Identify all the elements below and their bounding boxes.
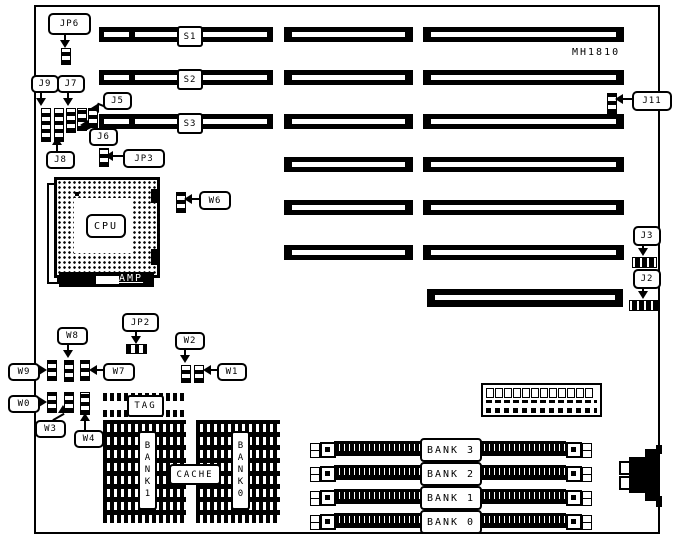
- simm-latch-icon: [566, 490, 582, 506]
- callout-w0: W0: [8, 395, 40, 413]
- pin1-dot: [75, 192, 79, 196]
- jumper-w2: [181, 365, 191, 383]
- simm-latch-icon: [320, 442, 336, 458]
- callout-w8: W8: [57, 327, 88, 345]
- jumper-w0: [47, 392, 57, 413]
- jumper-w9: [47, 360, 57, 381]
- isa-slot: [423, 157, 624, 172]
- callout-w9: W9: [8, 363, 40, 381]
- power-connector: [481, 383, 602, 417]
- keyboard-connector-pin: [619, 476, 631, 490]
- keyboard-connector: [645, 449, 659, 501]
- callout-jp2: JP2: [122, 313, 159, 332]
- connector-j2: [629, 300, 659, 311]
- bank3-label: BANK 3: [420, 438, 482, 462]
- slot-s1-label: S1: [177, 26, 203, 47]
- callout-w4: W4: [74, 430, 104, 448]
- cache-label: CACHE: [169, 464, 221, 485]
- connector-j3: [632, 257, 657, 268]
- jumper-jp6: [61, 48, 71, 65]
- isa-slot: [423, 200, 624, 215]
- socket-tab: [151, 249, 157, 265]
- slot-s3-label: S3: [177, 113, 203, 134]
- board-model-text: MH1810: [572, 47, 620, 58]
- callout-w7: W7: [103, 363, 135, 381]
- slot-s2-label: S2: [177, 69, 203, 90]
- simm-latch-icon: [320, 490, 336, 506]
- isa-slot: [284, 27, 413, 42]
- socket-tab: [151, 189, 157, 203]
- jumper-j9: [41, 108, 51, 142]
- simm-latch-icon: [566, 442, 582, 458]
- callout-j3: J3: [633, 226, 661, 246]
- simm-latch-icon: [566, 466, 582, 482]
- callout-j2: J2: [633, 269, 661, 289]
- isa-slot: [284, 70, 413, 85]
- jumper-w8: [64, 360, 74, 382]
- keyboard-connector: [629, 457, 646, 493]
- callout-w3: W3: [35, 420, 66, 438]
- isa-slot: [423, 27, 624, 42]
- bank2-label: BANK 2: [420, 462, 482, 486]
- isa-slot: [284, 114, 413, 129]
- tag-label: TAG: [127, 395, 164, 417]
- isa-slot: [423, 70, 624, 85]
- isa-slot: [284, 157, 413, 172]
- motherboard-diagram: MH1810 S1 S2 S3 JP6 J9: [0, 0, 673, 539]
- jumper-jp2: [126, 344, 147, 354]
- callout-j6: J6: [89, 128, 118, 146]
- slot-contact: [104, 119, 129, 124]
- keyboard-connector: [656, 496, 662, 507]
- amp-chip-window: [96, 276, 119, 284]
- isa-slot: [427, 289, 623, 307]
- jumper-w4: [80, 392, 90, 415]
- callout-j5: J5: [103, 92, 132, 110]
- keyboard-connector: [656, 445, 662, 454]
- callout-jp3: JP3: [123, 149, 165, 168]
- jumper-j7: [66, 108, 76, 133]
- isa-slot: [423, 114, 624, 129]
- simm-latch-icon: [320, 514, 336, 530]
- cache-bank0-label: BANK0: [231, 431, 250, 510]
- isa-slot: [284, 200, 413, 215]
- simm-latch-icon: [320, 466, 336, 482]
- isa-slot: [284, 245, 413, 260]
- callout-j11: J11: [632, 91, 672, 111]
- isa-slot: [423, 245, 624, 260]
- keyboard-connector-pin: [619, 461, 631, 475]
- callout-j7: J7: [57, 75, 85, 93]
- callout-j9: J9: [31, 75, 59, 93]
- cache-bank1-label: BANK1: [138, 431, 157, 510]
- bank1-label: BANK 1: [420, 486, 482, 510]
- callout-w6: W6: [199, 191, 231, 210]
- slot-contact: [104, 75, 129, 80]
- callout-w1: W1: [217, 363, 247, 381]
- callout-j8: J8: [46, 151, 75, 169]
- callout-jp6: JP6: [48, 13, 91, 35]
- slot-contact: [104, 32, 129, 37]
- amp-brand-text: AMP: [119, 273, 143, 284]
- callout-w2: W2: [175, 332, 205, 350]
- simm-latch-icon: [566, 514, 582, 530]
- cpu-label: CPU: [86, 214, 126, 238]
- bank0-label: BANK 0: [420, 510, 482, 534]
